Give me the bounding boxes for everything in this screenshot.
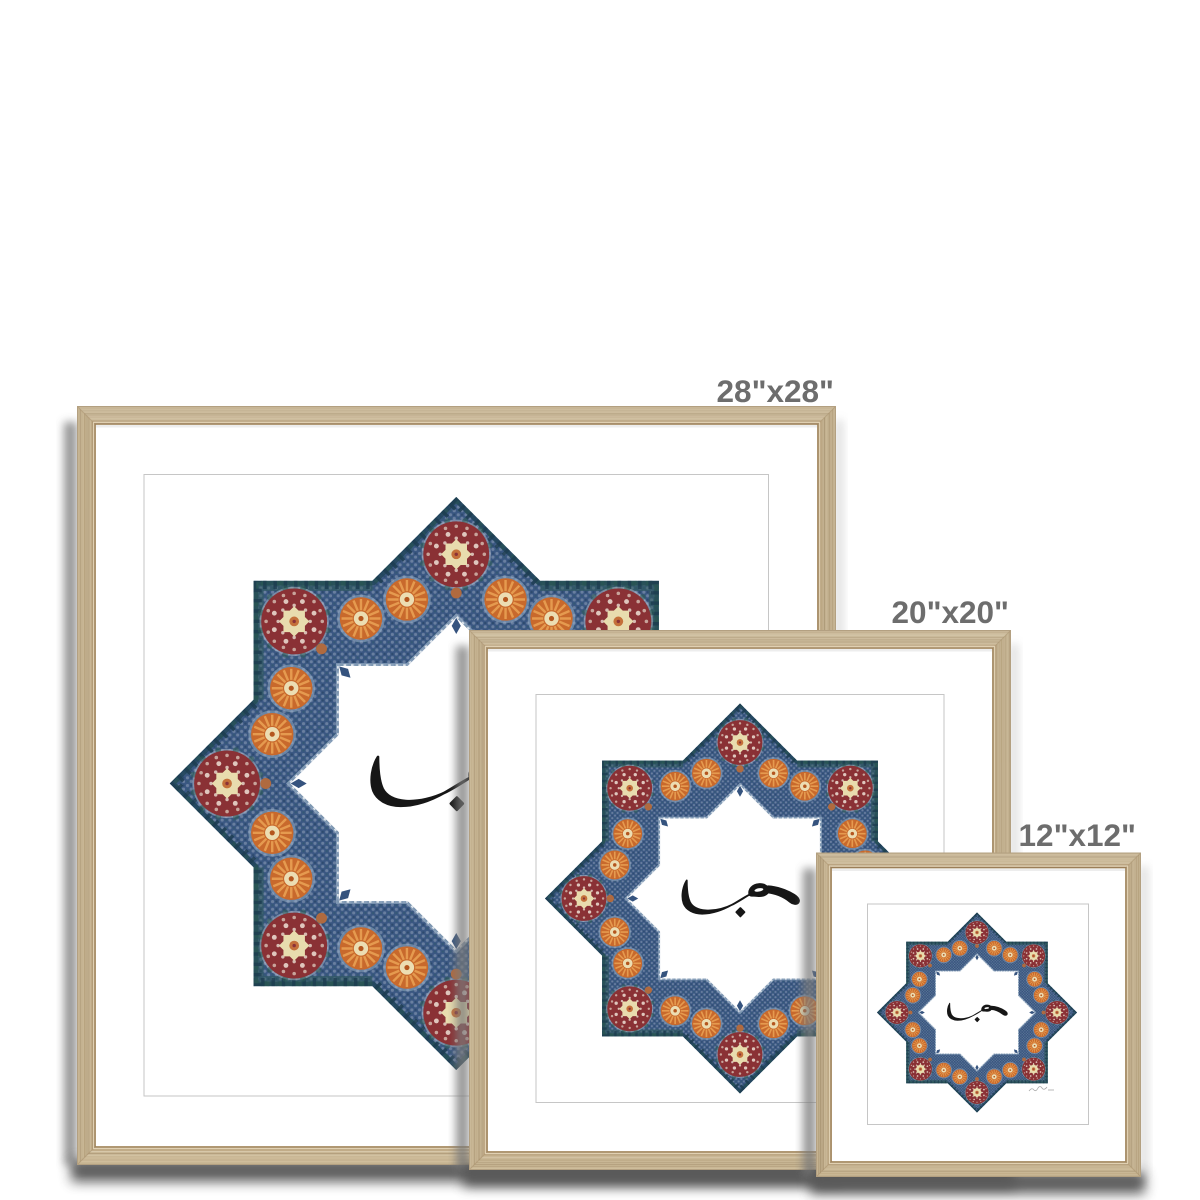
svg-text:28"x28": 28"x28" [717, 373, 834, 409]
svg-text:12"x12": 12"x12" [1019, 817, 1136, 853]
svg-text:20"x20": 20"x20" [892, 594, 1009, 630]
